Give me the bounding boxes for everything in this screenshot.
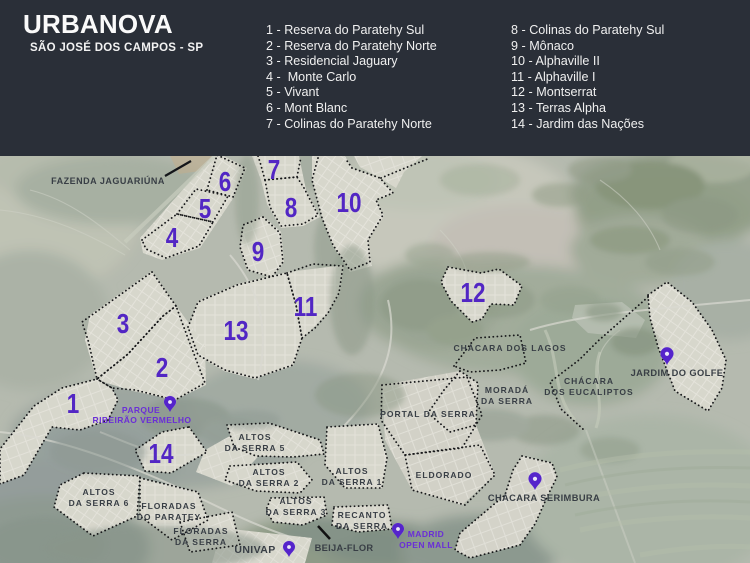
svg-text:DA SERRA 1: DA SERRA 1 (322, 477, 383, 487)
svg-text:DO PARATEY: DO PARATEY (137, 512, 201, 522)
svg-text:5: 5 (199, 194, 212, 225)
svg-text:ALTOS: ALTOS (82, 487, 115, 497)
svg-text:DA SERRA: DA SERRA (336, 521, 388, 531)
svg-text:ALTOS: ALTOS (252, 467, 285, 477)
svg-text:MADRID: MADRID (408, 529, 444, 539)
svg-text:FLORADAS: FLORADAS (173, 526, 228, 536)
svg-text:DOS EUCALIPTOS: DOS EUCALIPTOS (544, 387, 633, 397)
svg-text:10: 10 (336, 188, 361, 219)
svg-text:DA SERRA: DA SERRA (481, 396, 533, 406)
svg-text:12: 12 (460, 278, 485, 309)
svg-text:BEIJA-FLOR: BEIJA-FLOR (315, 543, 374, 553)
svg-text:CHÁCARA DOS LAGOS: CHÁCARA DOS LAGOS (453, 343, 566, 353)
svg-text:MORADÁ: MORADÁ (485, 385, 529, 395)
svg-text:11: 11 (294, 292, 318, 323)
svg-text:ALTOS: ALTOS (335, 466, 368, 476)
svg-text:3: 3 (117, 309, 130, 340)
svg-text:1: 1 (67, 389, 80, 420)
svg-text:OPEN MALL: OPEN MALL (399, 540, 453, 550)
svg-text:CHÁCARA: CHÁCARA (564, 376, 614, 386)
svg-text:CHÁCARA SERIMBURA: CHÁCARA SERIMBURA (488, 493, 600, 503)
svg-text:6: 6 (219, 167, 232, 198)
svg-text:7: 7 (268, 156, 281, 186)
svg-text:PORTAL DA SERRA: PORTAL DA SERRA (380, 409, 476, 419)
svg-text:2: 2 (156, 353, 169, 384)
svg-text:ALTOS: ALTOS (279, 496, 312, 506)
svg-text:JARDIM DO GOLFE: JARDIM DO GOLFE (631, 368, 724, 378)
svg-text:4: 4 (166, 223, 179, 254)
svg-text:RECANTO: RECANTO (338, 510, 387, 520)
svg-text:13: 13 (223, 316, 248, 347)
svg-text:DA SERRA 6: DA SERRA 6 (69, 498, 130, 508)
svg-text:DA SERRA: DA SERRA (175, 537, 227, 547)
svg-text:RIBEIRÃO VERMELHO: RIBEIRÃO VERMELHO (93, 415, 192, 425)
svg-text:DA SERRA 3: DA SERRA 3 (266, 507, 327, 517)
svg-text:DA SERRA 2: DA SERRA 2 (239, 478, 300, 488)
svg-text:UNIVAP: UNIVAP (234, 544, 275, 556)
svg-text:DA SERRA 5: DA SERRA 5 (225, 443, 286, 453)
svg-text:14: 14 (148, 439, 173, 470)
svg-text:8: 8 (285, 193, 298, 224)
svg-text:ALTOS: ALTOS (238, 432, 271, 442)
svg-text:FAZENDA JAGUARIÚNA: FAZENDA JAGUARIÚNA (51, 175, 165, 186)
svg-text:ELDORADO: ELDORADO (416, 470, 473, 480)
svg-text:9: 9 (252, 237, 265, 268)
svg-text:FLORADAS: FLORADAS (141, 501, 196, 511)
svg-text:PARQUE: PARQUE (122, 405, 160, 415)
